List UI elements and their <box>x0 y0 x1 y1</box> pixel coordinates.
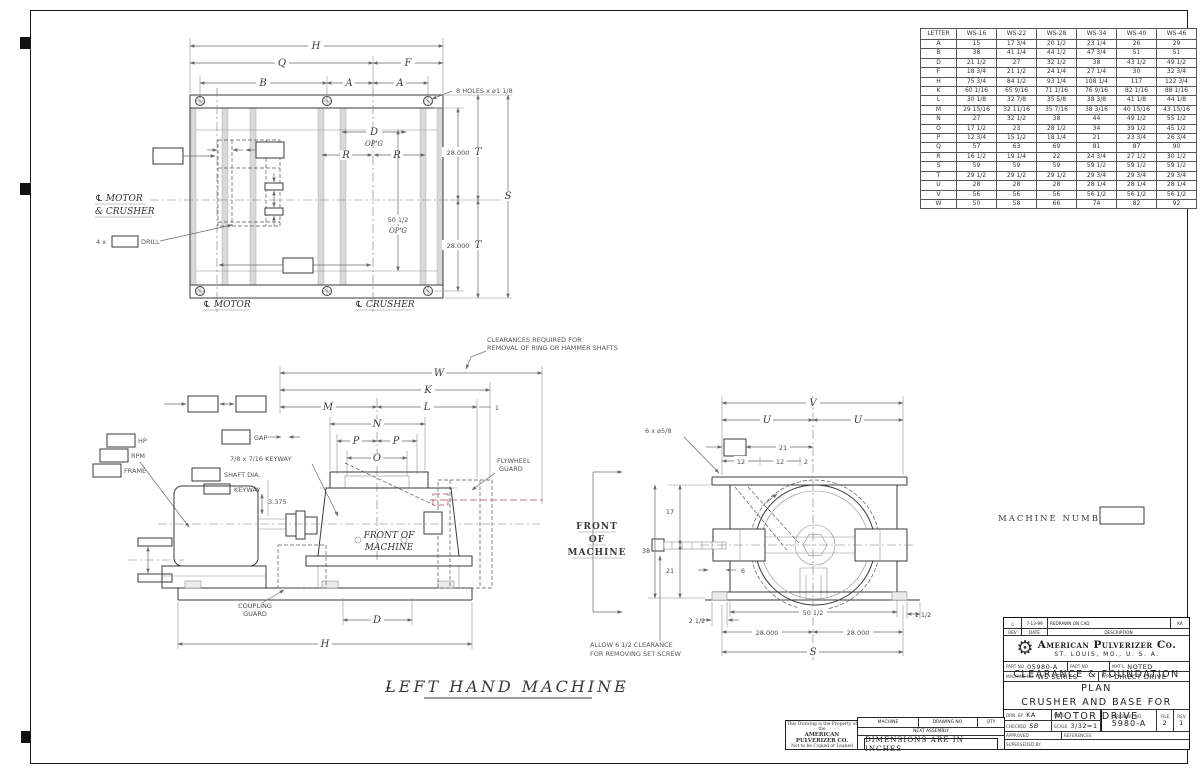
opg-label: OP'G <box>365 140 383 148</box>
dim-D-opg: D <box>369 127 378 138</box>
company-name: American Pulverizer Co. <box>1038 639 1177 651</box>
table-row: R16 1/219 1/42224 3/427 1/230 1/2 <box>921 152 1197 161</box>
table-row: T29 1/229 1/229 1/229 3/429 3/429 3/4 <box>921 171 1197 180</box>
dim-B: B <box>258 78 266 89</box>
company-gear-icon: ⚙ <box>1017 639 1034 658</box>
frame-label: FRAME <box>124 467 146 475</box>
table-row: A1517 3/420 1/223 1/42629 <box>921 40 1197 49</box>
dim-W: W <box>434 368 445 379</box>
dim-K: K <box>423 385 432 396</box>
keyway-note: 7/8 x 7/16 KEYWAY <box>230 455 291 463</box>
col-date-label: DATE <box>1022 629 1048 635</box>
drn-by-label: DRN. BY <box>1006 713 1023 718</box>
property-note-line1: This Drawing is the Property of the <box>786 722 858 732</box>
title-block: △ 7-13-99 REDRAWN ON CAD KA REV DATE DES… <box>1003 617 1190 750</box>
cl-motor-crusher-label-2: & CRUSHER <box>95 207 155 217</box>
elevation-view-drawing: CLEARANCES REQUIRED FOR REMOVAL OF RING … <box>93 336 618 650</box>
dim-P2: P <box>392 436 400 447</box>
table-row: M29 15/1632 11/1635 7/1638 3/1640 15/164… <box>921 105 1197 114</box>
machine-col-label: MACHINE <box>858 718 919 727</box>
dim-28a: 28.000 <box>447 149 470 157</box>
dim-M: M <box>322 402 334 413</box>
dim-38: 38 <box>642 547 650 555</box>
date-label: DATE <box>1054 713 1065 718</box>
dim-N: N <box>372 419 383 430</box>
coupling-guard-label-2: GUARD <box>243 610 267 618</box>
drawing-sheet: H Q F B A A 8 HOLES x ⌀1 1/8 D OP'G <box>0 0 1200 776</box>
col-rev-label: REV <box>1004 629 1022 635</box>
rev-value: 1 <box>1179 719 1184 727</box>
dim-2: 2 <box>804 458 808 466</box>
end-holes-note: 6 x ⌀5/8 <box>645 427 672 435</box>
coupling-guard-label-1: COUPLING <box>238 602 272 610</box>
dim-21-top: 21 <box>779 444 787 452</box>
dim-S-end: S <box>810 647 817 658</box>
drawing-no-value: 5980-A <box>1112 719 1147 728</box>
approved-label: APPROVED <box>1006 733 1029 738</box>
front-of-machine-body-2: MACHINE <box>364 543 414 553</box>
shaft-dia-label: SHAFT DIA. <box>224 471 260 479</box>
rpm-label: RPM <box>131 452 145 460</box>
table-row: F18 3/421 1/224 1/427 1/43032 3/4 <box>921 68 1197 77</box>
table-column-header: WS-16 <box>957 29 997 40</box>
dim-Q: Q <box>278 58 286 69</box>
dim-2half: 2 1/2 <box>689 617 706 625</box>
drawing-title-1: CLEARANCE & FOUNDATION PLAN <box>1004 668 1189 696</box>
dim-21-left: 21 <box>666 567 674 575</box>
dim-opening: 50 1/2 <box>388 216 409 224</box>
table-header-row: LETTERWS-16WS-22WS-28WS-34WS-40WS-46 <box>921 29 1197 40</box>
dimensions-note: DIMENSIONS ARE IN INCHES <box>864 738 998 750</box>
cl-motor-crusher-label-1: ℄ MOTOR <box>95 194 143 204</box>
machine-number-box <box>1100 507 1144 524</box>
dim-1half: 1 1/2 <box>915 611 932 619</box>
setscrew-note-1: ALLOW 6 1/2 CLEARANCE <box>590 641 673 649</box>
front-label-1: FRONT <box>576 522 618 532</box>
table-column-header: LETTER <box>921 29 957 40</box>
dim-17: 17 <box>666 508 674 516</box>
dim-6: 6 <box>741 567 745 575</box>
table-row: K60 1/1665 9/1671 1/1676 9/1682 1/1688 1… <box>921 87 1197 96</box>
opg-label2: OP'G <box>389 227 407 235</box>
table-row: L30 1/832 7/835 5/838 3/841 1/844 1/8 <box>921 96 1197 105</box>
front-of-machine-body-1: FRONT OF <box>363 531 416 541</box>
dim-28000b: 28.000 <box>847 629 870 637</box>
table-row: O17 1/22328 1/23439 1/245 1/2 <box>921 124 1197 133</box>
cl-crusher-label: ℄ CRUSHER <box>355 300 415 310</box>
table-row: U28282828 1/428 1/428 1/4 <box>921 181 1197 190</box>
page-title: LEFT HAND MACHINE <box>384 677 629 696</box>
dim-D-elev: D <box>372 615 381 626</box>
dim-1: 1 <box>495 404 499 412</box>
scale-value: 3/32=1 <box>1070 722 1097 730</box>
dim-12b: 12 <box>776 458 784 466</box>
table-row: D21 1/22732 1/23843 1/249 1/2 <box>921 58 1197 67</box>
property-note-line2: AMERICAN PULVERIZER CO. <box>786 732 858 744</box>
col-description-label: DESCRIPTION <box>1048 629 1189 635</box>
holes-note: 8 HOLES x ⌀1 1/8 <box>456 87 513 95</box>
dim-O: O <box>373 453 381 464</box>
company-address: ST. LOUIS, MO., U. S. A. <box>1038 651 1177 658</box>
flywheel-guard-label-2: GUARD <box>499 465 523 473</box>
revision-by: KA <box>1171 618 1189 628</box>
plan-view-drawing: H Q F B A A 8 HOLES x ⌀1 1/8 D OP'G <box>95 38 514 312</box>
revision-date: 7-13-99 <box>1022 618 1048 628</box>
flywheel-guard-label-1: FLYWHEEL <box>497 457 531 465</box>
table-row: W505866748292 <box>921 199 1197 208</box>
dim-U2: U <box>854 415 863 426</box>
clearance-note-1: CLEARANCES REQUIRED FOR <box>487 336 582 344</box>
dim-U1: U <box>763 415 772 426</box>
table-row: P12 3/415 1/218 1/42123 3/426 3/4 <box>921 134 1197 143</box>
checked-value: SB <box>1029 722 1039 730</box>
drill-count: 4 x <box>96 238 106 246</box>
dim-50half: 50 1/2 <box>803 609 824 617</box>
dim-P1: P <box>352 436 360 447</box>
title-dash-right: - <box>620 677 628 696</box>
property-note: This Drawing is the Property of the AMER… <box>785 720 859 750</box>
dim-F: F <box>404 58 413 69</box>
file-value: 2 <box>1163 719 1168 727</box>
dim-A2: A <box>395 78 403 89</box>
table-column-header: WS-40 <box>1117 29 1157 40</box>
dim-S: S <box>505 191 512 202</box>
drawing-no-col-label: DRAWING NO. <box>919 718 978 727</box>
drn-by-value: KA <box>1026 711 1036 719</box>
cl-motor-label: ℄ MOTOR <box>203 300 251 310</box>
dim-H-elev: H <box>320 639 330 650</box>
table-row: N2732 1/2384449 1/255 1/2 <box>921 115 1197 124</box>
revision-marker: △ <box>1004 618 1022 628</box>
dim-L: L <box>423 402 431 413</box>
front-of-machine-bracket: FRONT OF MACHINE <box>568 472 627 612</box>
dim-3375: 3.375 <box>268 498 287 506</box>
front-label-2: OF <box>589 535 605 545</box>
end-view-drawing: V U U 6 x ⌀5/8 21 12 12 2 17 <box>590 396 931 660</box>
table-row: H75 3/484 1/293 1/4108 1/4117122 3/4 <box>921 77 1197 86</box>
table-column-header: WS-28 <box>1037 29 1077 40</box>
dim-12a: 12 <box>737 458 745 466</box>
table-row: Q576369818790 <box>921 143 1197 152</box>
table-row: B3841 1/444 1/247 3/45151 <box>921 49 1197 58</box>
hp-label: HP <box>138 437 147 445</box>
references-label: REFERENCES <box>1064 733 1092 738</box>
table-row: S59595959 1/259 1/259 1/2 <box>921 162 1197 171</box>
front-label-3: MACHINE <box>568 548 627 558</box>
bottom-strip-block: MACHINE DRAWING NO. QTY NEXT ASSEMBLY DI… <box>857 717 1005 750</box>
property-note-line3: Not to be Copied or Loaned <box>786 744 858 749</box>
dim-H: H <box>311 41 321 52</box>
dim-R2: R <box>392 150 401 161</box>
clearance-note-2: REMOVAL OF RING OR HAMMER SHAFTS <box>487 344 618 352</box>
table-column-header: WS-22 <box>997 29 1037 40</box>
dim-28000a: 28.000 <box>756 629 779 637</box>
machine-number-label: MACHINE NUMBER <box>998 514 1117 524</box>
superseded-label: SUPERSEDED BY. <box>1006 742 1041 747</box>
drill-label: DRILL <box>141 238 160 246</box>
table-column-header: WS-46 <box>1157 29 1197 40</box>
revision-description: REDRAWN ON CAD <box>1048 618 1171 628</box>
dimension-table: LETTERWS-16WS-22WS-28WS-34WS-40WS-46 A15… <box>920 28 1197 209</box>
dim-28b: 28.000 <box>447 242 470 250</box>
checked-label: CHECKED <box>1006 724 1026 729</box>
qty-col-label: QTY <box>978 718 1004 727</box>
gap-label: GAP <box>254 434 267 442</box>
table-row: V56565656 1/256 1/256 1/2 <box>921 190 1197 199</box>
scale-label: SCALE <box>1054 724 1067 729</box>
dim-A1: A <box>344 78 352 89</box>
table-column-header: WS-34 <box>1077 29 1117 40</box>
dim-R1: R <box>341 150 350 161</box>
setscrew-note-2: FOR REMOVING SET SCREW <box>590 650 682 658</box>
